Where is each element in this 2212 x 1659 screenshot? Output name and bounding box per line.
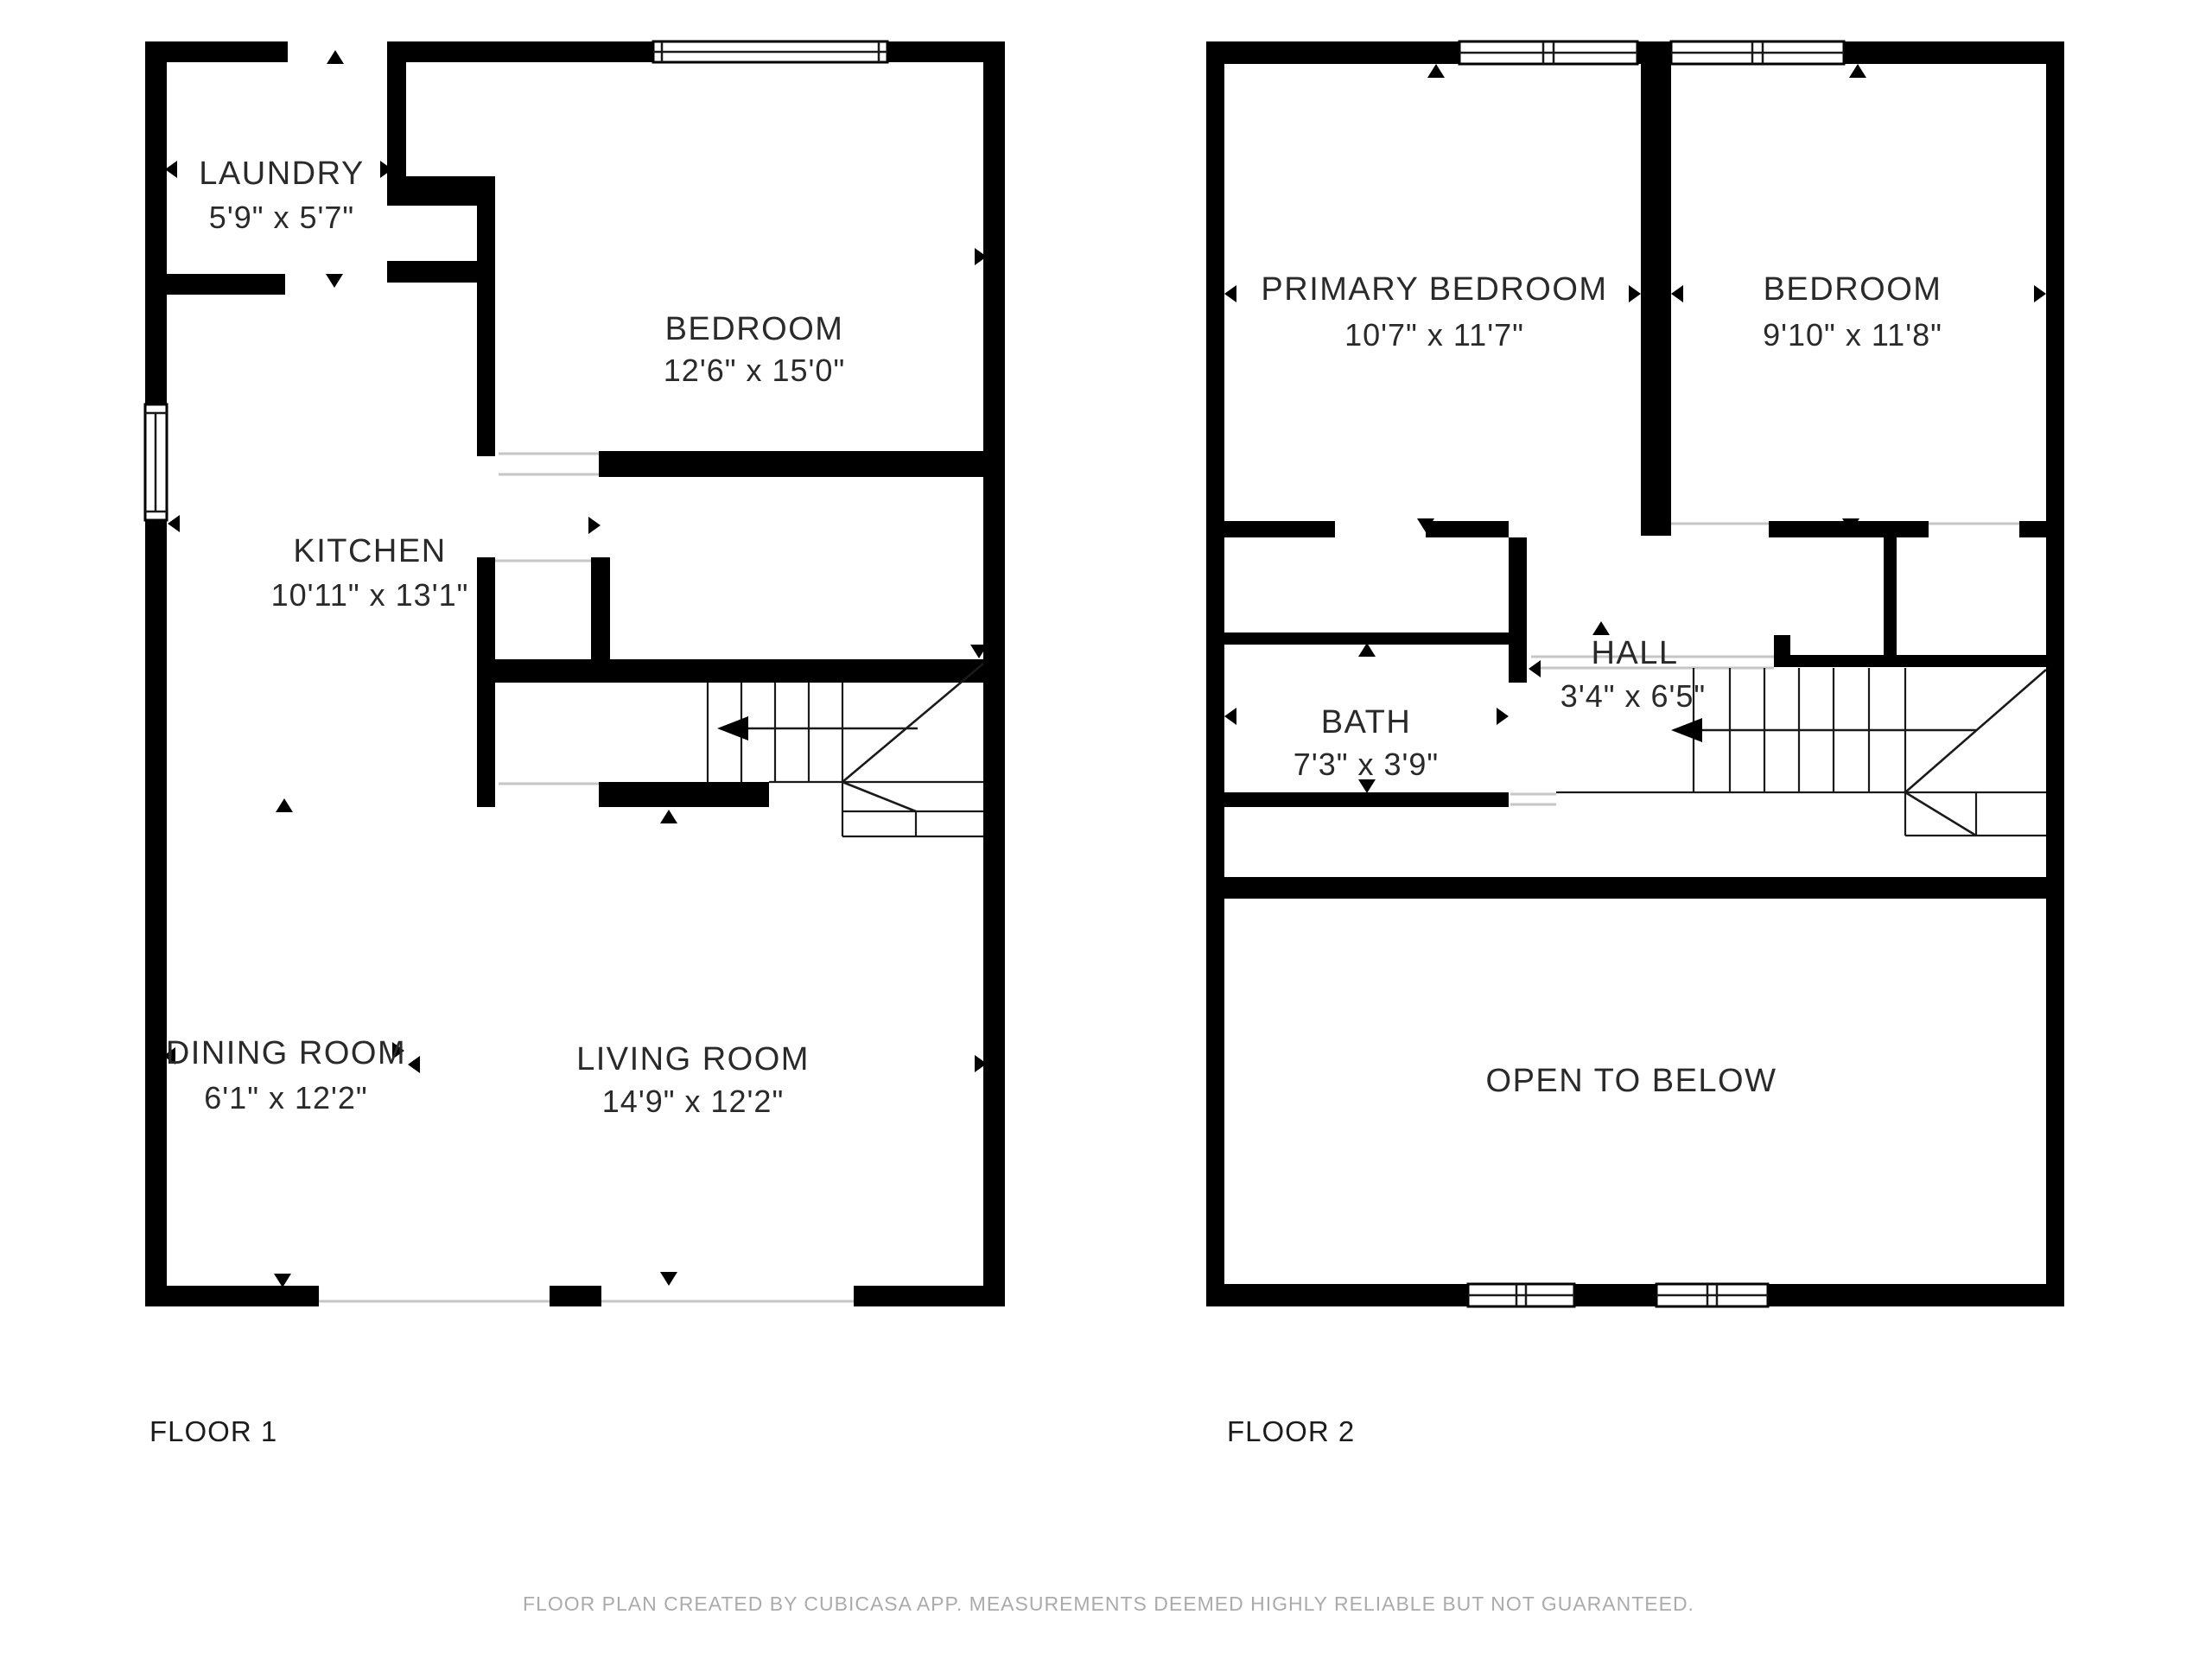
- floor1-window-left: [145, 404, 167, 520]
- room-label-primary-bedroom: PRIMARY BEDROOM: [1261, 271, 1607, 308]
- dim-marker-up-icon: [1358, 643, 1376, 657]
- stair-arrow-icon: [717, 716, 748, 741]
- floor2-label: FLOOR 2: [1227, 1415, 1355, 1447]
- floor2-window-bottom-right: [1656, 1284, 1768, 1306]
- dim-marker-left-icon: [168, 515, 180, 532]
- room-label-bedroom: BEDROOM: [665, 311, 844, 347]
- room-label-bath: BATH: [1321, 704, 1412, 741]
- room-label-bedroom2: BEDROOM: [1764, 271, 1942, 308]
- door-marker-left-icon: [1529, 660, 1541, 677]
- room-dims-dining: 6'1" x 12'2": [204, 1080, 367, 1116]
- room-label-dining: DINING ROOM: [166, 1035, 406, 1071]
- dim-marker-left-icon: [408, 1056, 420, 1073]
- window-marker-up-icon: [1427, 64, 1445, 78]
- room-dims-bedroom2: 9'10" x 11'8": [1763, 317, 1942, 353]
- floor1-room-labels: LAUNDRY 5'9" x 5'7" BEDROOM 12'6" x 15'0…: [166, 156, 845, 1119]
- floor2-room-labels: PRIMARY BEDROOM 10'7" x 11'7" BEDROOM 9'…: [1261, 271, 1942, 1099]
- dim-marker-left-icon: [1671, 285, 1683, 302]
- door-marker-down-icon: [660, 1272, 677, 1286]
- room-label-kitchen: KITCHEN: [293, 533, 446, 569]
- room-dims-laundry: 5'9" x 5'7": [209, 200, 354, 235]
- room-label-hall: HALL: [1591, 635, 1678, 671]
- door-marker-up-icon: [660, 810, 677, 823]
- floor2-window-bottom-left: [1468, 1284, 1574, 1306]
- door-marker-up-icon: [327, 50, 344, 64]
- room-dims-living: 14'9" x 12'2": [602, 1084, 784, 1119]
- room-dims-hall: 3'4" x 6'5": [1560, 678, 1706, 714]
- floor1-plan: LAUNDRY 5'9" x 5'7" BEDROOM 12'6" x 15'0…: [145, 41, 1005, 1306]
- floor-plan-page: LAUNDRY 5'9" x 5'7" BEDROOM 12'6" x 15'0…: [0, 0, 2212, 1659]
- door-marker-right-icon: [588, 517, 601, 534]
- floor2-window-top-right: [1671, 41, 1844, 64]
- dim-marker-right-icon: [1629, 285, 1641, 302]
- floor1-stairs: [708, 664, 983, 836]
- stair-arrow-icon: [1671, 718, 1702, 742]
- room-dims-bedroom: 12'6" x 15'0": [664, 353, 845, 388]
- room-label-laundry: LAUNDRY: [199, 156, 364, 192]
- floor1-window-top: [653, 41, 887, 62]
- floor2-exterior-walls: [1206, 41, 2064, 1306]
- dim-marker-left-icon: [165, 161, 177, 178]
- dim-marker-right-icon: [1497, 708, 1509, 725]
- zone-marker-up-icon: [276, 798, 293, 812]
- room-label-living: LIVING ROOM: [576, 1041, 810, 1077]
- door-marker-up-icon: [1592, 621, 1610, 635]
- room-dims-bath: 7'3" x 3'9": [1294, 747, 1439, 782]
- dim-marker-right-icon: [2034, 285, 2046, 302]
- floor-plan-canvas: LAUNDRY 5'9" x 5'7" BEDROOM 12'6" x 15'0…: [0, 0, 2212, 1659]
- floor1-label: FLOOR 1: [149, 1415, 277, 1447]
- window-marker-up-icon: [1849, 64, 1866, 78]
- room-dims-kitchen: 10'11" x 13'1": [271, 577, 469, 613]
- door-marker-down-icon: [326, 274, 343, 288]
- door-marker-down-icon: [274, 1274, 291, 1287]
- dim-marker-left-icon: [1224, 708, 1236, 725]
- floor2-window-top-left: [1459, 41, 1637, 64]
- dim-marker-left-icon: [1224, 285, 1236, 302]
- floor2-plan: PRIMARY BEDROOM 10'7" x 11'7" BEDROOM 9'…: [1206, 41, 2064, 1306]
- room-label-open-to-below: OPEN TO BELOW: [1486, 1063, 1777, 1099]
- room-dims-primary-bedroom: 10'7" x 11'7": [1344, 317, 1524, 353]
- plan-captions: FLOOR 1 FLOOR 2 FLOOR PLAN CREATED BY CU…: [149, 1415, 1694, 1615]
- footer-disclaimer: FLOOR PLAN CREATED BY CUBICASA APP. MEAS…: [523, 1592, 1694, 1615]
